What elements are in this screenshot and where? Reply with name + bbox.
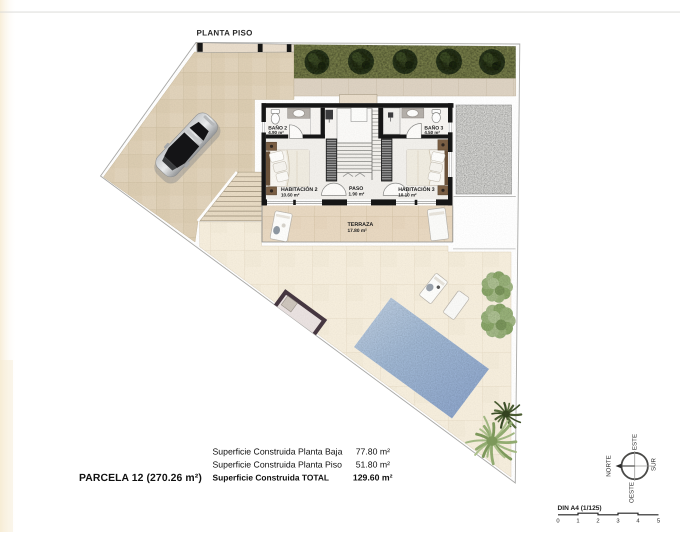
svg-text:51.80 m²: 51.80 m² [356,460,390,470]
svg-text:3: 3 [616,518,619,525]
svg-text:Superficie Construida TOTAL: Superficie Construida TOTAL [213,473,329,483]
svg-text:NORTE: NORTE [606,455,613,477]
svg-text:Superficie Construida Planta B: Superficie Construida Planta Baja [213,447,343,457]
svg-text:DIN A4 (1/125): DIN A4 (1/125) [558,505,602,512]
svg-text:129.60 m²: 129.60 m² [353,473,393,483]
svg-text:5: 5 [657,519,660,525]
svg-text:SUR: SUR [651,457,658,471]
svg-text:Superficie Construida Planta P: Superficie Construida Planta Piso [213,460,343,470]
svg-text:0: 0 [556,518,559,525]
svg-text:PARCELA 12 (270.26 m²): PARCELA 12 (270.26 m²) [79,473,202,484]
svg-text:2: 2 [596,518,599,525]
svg-text:PLANTA PISO: PLANTA PISO [197,28,253,37]
svg-text:ESTE: ESTE [632,434,639,450]
svg-text:77.80 m²: 77.80 m² [356,447,390,457]
svg-text:OESTE: OESTE [629,482,636,503]
svg-text:1: 1 [576,519,579,525]
